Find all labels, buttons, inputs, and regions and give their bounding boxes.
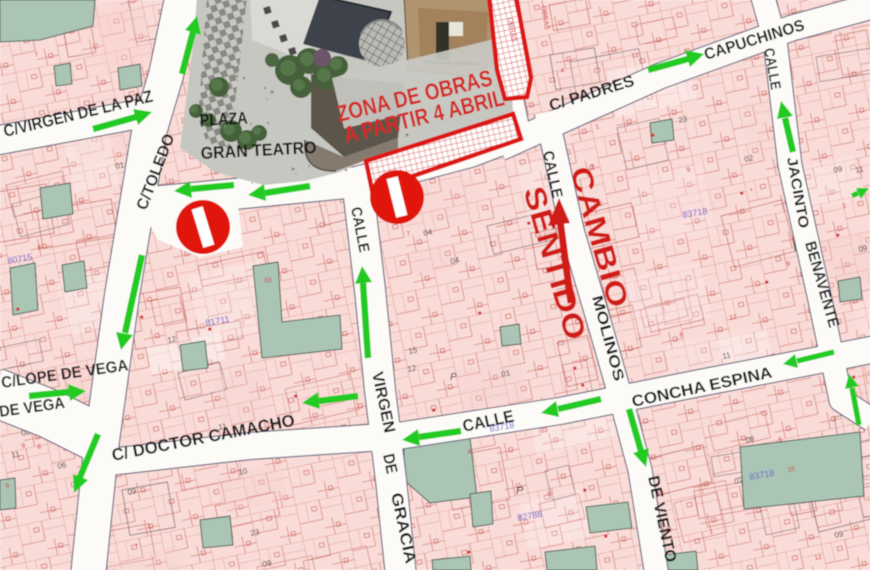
svg-text:P: P xyxy=(516,485,524,497)
svg-text:PLAZA: PLAZA xyxy=(199,109,248,130)
svg-text:P: P xyxy=(450,372,457,383)
